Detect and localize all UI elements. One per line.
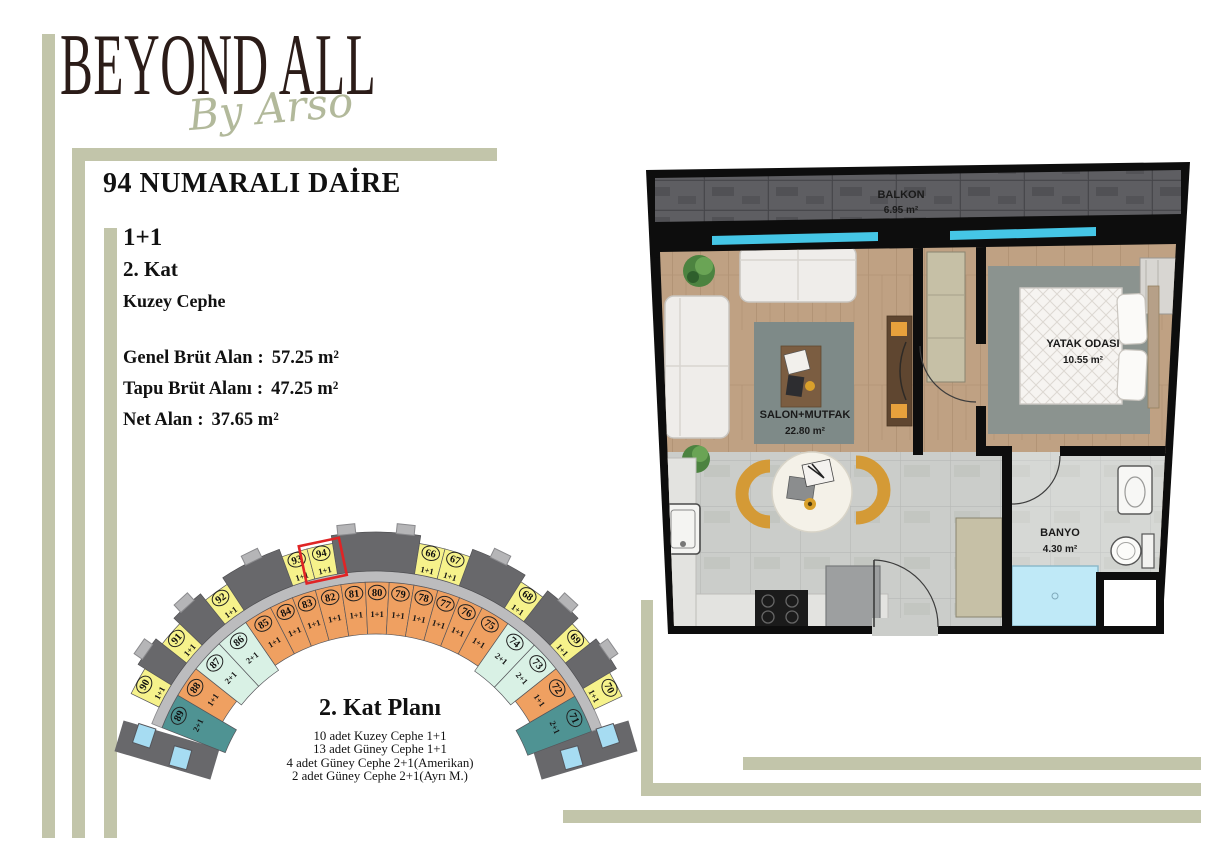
- svg-text:1+1: 1+1: [391, 610, 405, 621]
- hall-closet: [927, 252, 965, 382]
- wall-hall-bedroom-upper: [976, 246, 986, 344]
- flyer-page: BEYOND ALL By Arso 94 NUMARALI DAİRE 1+1…: [0, 0, 1223, 864]
- wall-salon-hall: [913, 248, 923, 455]
- svg-text:1+1: 1+1: [349, 609, 363, 620]
- svg-text:81: 81: [348, 589, 360, 601]
- sofa-left: [665, 296, 729, 438]
- unit-type: 1+1: [391, 610, 405, 621]
- svg-text:79: 79: [395, 589, 407, 601]
- label-banyo: BANYO: [1040, 527, 1080, 539]
- bed-pillow-1: [1117, 293, 1148, 344]
- legend-line-guney-1-1: 13 adet Güney Cephe 1+1: [230, 743, 530, 756]
- plant-top: [683, 255, 715, 287]
- svg-text:80: 80: [372, 588, 383, 599]
- entry-door-gap: [872, 618, 938, 636]
- toilet: [1111, 534, 1154, 568]
- bed-pillow-2: [1117, 349, 1148, 400]
- coffee-table-bowl: [805, 381, 815, 391]
- bed-headboard: [1148, 286, 1159, 408]
- kitchen-appliance: [826, 566, 880, 628]
- shower: [1012, 566, 1098, 626]
- unit-type: 1+1: [349, 609, 363, 620]
- label-yatak-area: 10.55 m²: [1063, 355, 1104, 366]
- unit-type: 1+1: [370, 609, 383, 619]
- wall-hall-bedroom-lower: [976, 406, 986, 456]
- site-plan-title: 2. Kat Planı: [250, 695, 510, 722]
- legend-line-kuzey-1-1: 10 adet Kuzey Cephe 1+1: [230, 730, 530, 743]
- unit-80: 801+1: [365, 582, 389, 634]
- legend-line-amerikan: 4 adet Güney Cephe 2+1(Amerikan): [230, 757, 530, 770]
- graphics-canvas: BALKON 6.95 m² SALON+MUTFAK 22.80 m² YAT…: [0, 0, 1223, 864]
- sink-drain: [680, 541, 686, 547]
- label-balkon: BALKON: [877, 189, 924, 201]
- cooktop: [755, 590, 808, 628]
- label-salon-area: 22.80 m²: [785, 426, 826, 437]
- site-plan-legend: 10 adet Kuzey Cephe 1+1 13 adet Güney Ce…: [230, 730, 530, 784]
- stair-tab-3: [337, 524, 356, 536]
- coffee-table-tray: [786, 375, 805, 397]
- svg-text:1+1: 1+1: [370, 609, 383, 619]
- tv-unit: [887, 316, 912, 426]
- label-banyo-area: 4.30 m²: [1043, 544, 1078, 555]
- svg-text:66: 66: [424, 548, 437, 561]
- svg-text:82: 82: [324, 592, 337, 605]
- stair-tab-4: [396, 524, 415, 536]
- corner-notch: [1096, 572, 1164, 634]
- entry-closet: [956, 518, 1002, 617]
- label-balkon-area: 6.95 m²: [884, 205, 919, 216]
- legend-line-ayri: 2 adet Güney Cephe 2+1(Ayrı M.): [230, 770, 530, 783]
- label-salon: SALON+MUTFAK: [760, 409, 851, 421]
- wall-entry-bathroom: [1002, 452, 1012, 634]
- label-yatak: YATAK ODASI: [1046, 338, 1119, 350]
- floor-plan: BALKON 6.95 m² SALON+MUTFAK 22.80 m² YAT…: [646, 162, 1190, 636]
